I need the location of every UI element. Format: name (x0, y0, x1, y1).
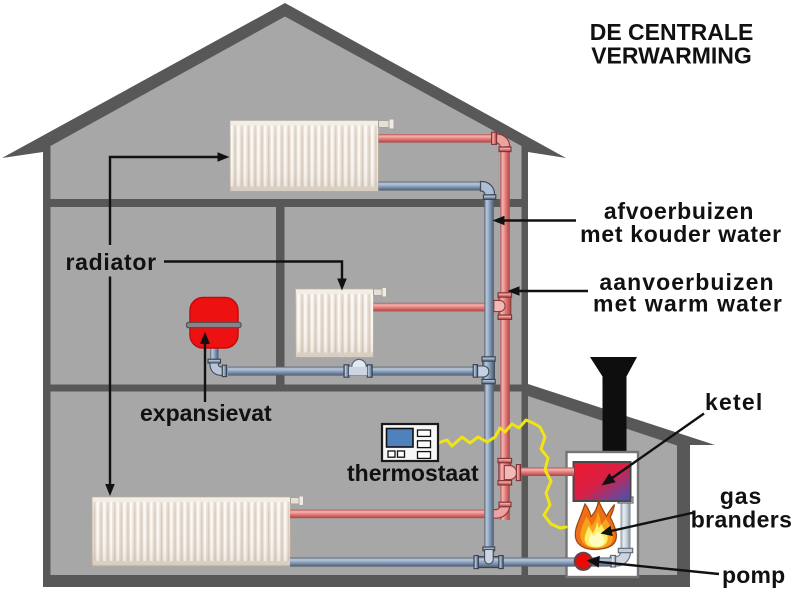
svg-text:ketel: ketel (705, 389, 763, 415)
svg-text:thermostaat: thermostaat (347, 460, 479, 486)
svg-text:radiator: radiator (66, 249, 157, 275)
svg-text:gas: gas (720, 483, 762, 509)
svg-text:branders: branders (691, 507, 793, 533)
svg-text:pomp: pomp (722, 562, 785, 588)
svg-text:met kouder water: met kouder water (580, 221, 782, 247)
svg-text:DE CENTRALE: DE CENTRALE (590, 19, 754, 45)
svg-text:expansievat: expansievat (140, 400, 272, 426)
svg-text:met warm water: met warm water (593, 291, 783, 317)
svg-text:VERWARMING: VERWARMING (591, 43, 752, 69)
